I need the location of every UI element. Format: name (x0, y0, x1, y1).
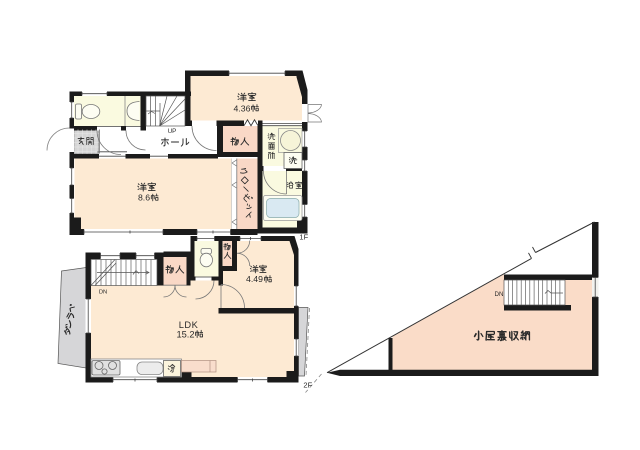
svg-text:UP: UP (168, 128, 177, 135)
svg-text:4.49: 4.49 (246, 274, 263, 284)
svg-text:4.36: 4.36 (234, 103, 251, 113)
svg-text:1F: 1F (299, 232, 308, 241)
svg-text:8.6: 8.6 (138, 193, 150, 203)
svg-text:LDK: LDK (179, 320, 199, 330)
svg-text:2F: 2F (303, 381, 312, 390)
svg-text:DN: DN (99, 289, 107, 295)
svg-text:15.2: 15.2 (176, 329, 194, 339)
svg-text:DN: DN (495, 291, 504, 298)
